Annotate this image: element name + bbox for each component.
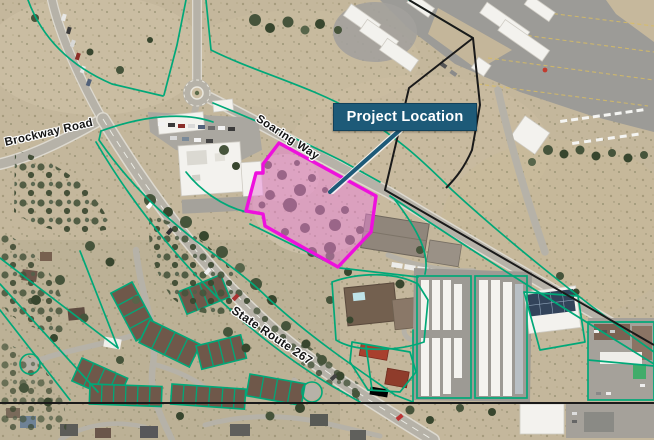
project-location-callout: Project Location [333, 103, 477, 131]
roundabout [183, 79, 211, 107]
storage-facility [412, 268, 532, 402]
project-location-map: Brockway Road Soaring Way State Route 26… [0, 0, 654, 440]
helicopter [543, 68, 548, 73]
aerial-map [0, 0, 654, 440]
